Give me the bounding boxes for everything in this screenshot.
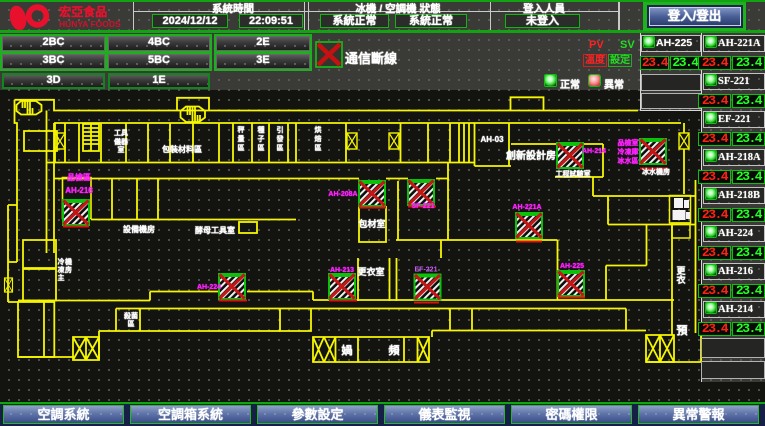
svg-text:室: 室 bbox=[118, 145, 125, 154]
svg-text:區: 區 bbox=[315, 143, 322, 152]
svg-text:工程試驗室: 工程試驗室 bbox=[556, 169, 591, 178]
svg-text:設備機房: 設備機房 bbox=[123, 224, 155, 234]
svg-text:主: 主 bbox=[58, 273, 65, 282]
svg-text:頻: 頻 bbox=[389, 343, 400, 357]
svg-text:AH-214: AH-214 bbox=[582, 148, 606, 155]
svg-text:創新設計房: 創新設計房 bbox=[505, 149, 556, 162]
svg-text:發: 發 bbox=[276, 134, 285, 143]
svg-text:預: 預 bbox=[677, 323, 689, 337]
svg-text:品檢室: 品檢室 bbox=[618, 138, 639, 147]
svg-text:儀器: 儀器 bbox=[113, 137, 129, 146]
svg-text:AH-221A: AH-221A bbox=[512, 204, 541, 211]
svg-text:秤: 秤 bbox=[238, 125, 245, 134]
svg-text:EF-221: EF-221 bbox=[415, 267, 438, 274]
svg-text:冰水機房: 冰水機房 bbox=[642, 167, 670, 176]
svg-text:衣: 衣 bbox=[676, 274, 685, 285]
svg-text:冰水區: 冰水區 bbox=[618, 156, 639, 165]
svg-text:引: 引 bbox=[277, 125, 284, 134]
svg-text:AH-225: AH-225 bbox=[560, 263, 584, 270]
svg-text:區: 區 bbox=[128, 319, 135, 328]
svg-text:媧: 媧 bbox=[341, 343, 353, 357]
svg-text:區: 區 bbox=[258, 143, 265, 152]
svg-text:殺菌: 殺菌 bbox=[123, 311, 138, 320]
svg-text:工具: 工具 bbox=[114, 128, 128, 137]
svg-text:品檢區: 品檢區 bbox=[67, 172, 91, 182]
svg-text:冷: 冷 bbox=[58, 257, 65, 266]
svg-text:AH-218: AH-218 bbox=[65, 186, 93, 195]
svg-text:包裝材料區: 包裝材料區 bbox=[161, 144, 202, 154]
svg-text:子: 子 bbox=[258, 135, 265, 143]
svg-text:量: 量 bbox=[238, 134, 245, 143]
svg-text:AH-213: AH-213 bbox=[330, 267, 354, 274]
svg-text:烘: 烘 bbox=[315, 125, 322, 134]
svg-text:AH-208A: AH-208A bbox=[328, 191, 357, 198]
svg-text:包材室: 包材室 bbox=[357, 218, 385, 229]
svg-text:冷凍庫: 冷凍庫 bbox=[618, 147, 639, 156]
svg-text:種: 種 bbox=[258, 125, 265, 134]
svg-text:AH-224: AH-224 bbox=[197, 284, 221, 291]
svg-text:機: 機 bbox=[65, 257, 72, 266]
svg-text:區: 區 bbox=[277, 143, 284, 152]
svg-text:AH-03: AH-03 bbox=[480, 135, 504, 144]
svg-text:酵母工具室: 酵母工具室 bbox=[195, 225, 235, 235]
svg-text:房: 房 bbox=[65, 265, 72, 274]
svg-text:區: 區 bbox=[238, 143, 245, 152]
svg-text:更衣室: 更衣室 bbox=[357, 266, 384, 277]
svg-text:SF-221: SF-221 bbox=[412, 203, 435, 210]
svg-text:焙: 焙 bbox=[315, 134, 322, 143]
